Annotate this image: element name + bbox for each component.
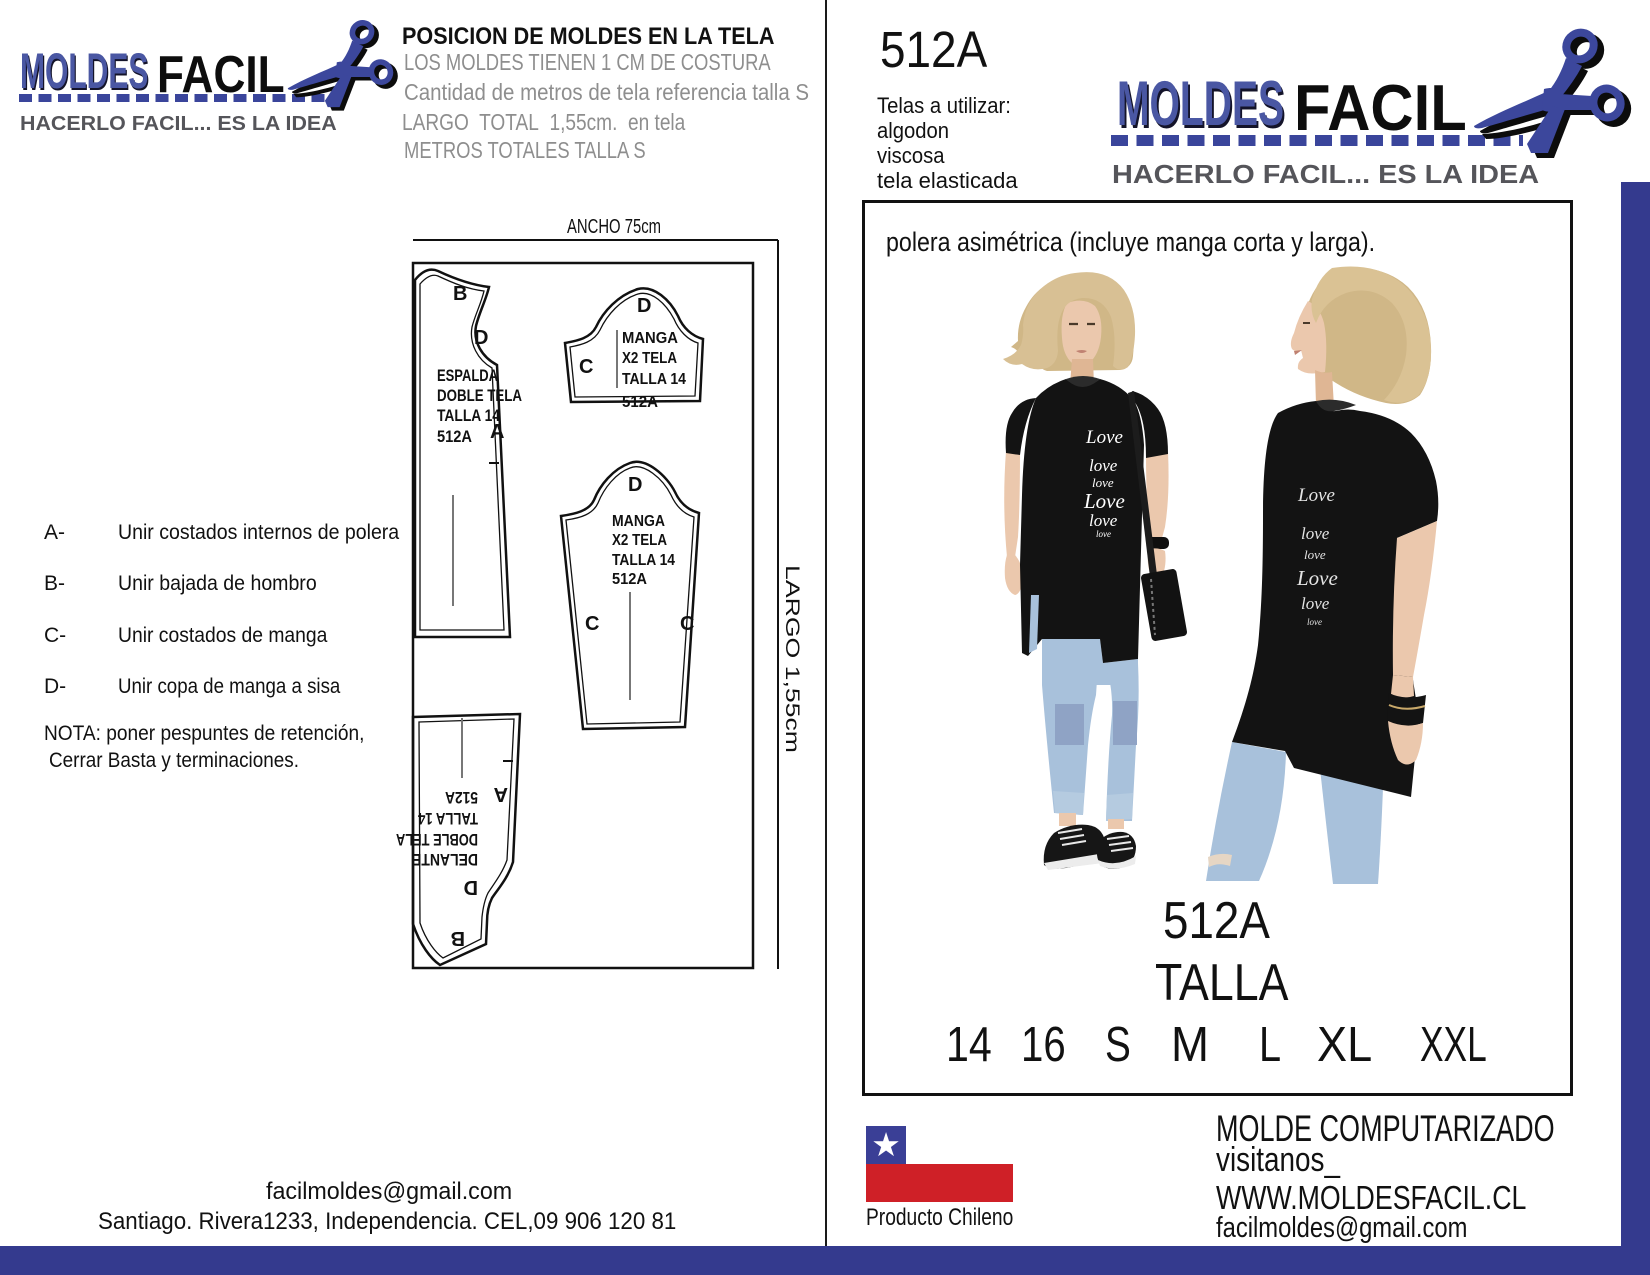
svg-text:DOBLE TELA: DOBLE TELA (437, 386, 522, 405)
svg-text:love: love (1307, 617, 1322, 627)
svg-text:512A: 512A (445, 788, 478, 807)
svg-text:TALLA 14: TALLA 14 (612, 552, 675, 569)
svg-text:C: C (680, 613, 694, 635)
svg-text:love: love (1089, 511, 1118, 530)
svg-text:TALLA 14: TALLA 14 (622, 371, 686, 388)
svg-text:C: C (579, 356, 593, 378)
svg-text:love: love (1089, 456, 1118, 475)
svg-text:512A: 512A (612, 571, 647, 588)
svg-text:D: D (464, 876, 478, 898)
svg-text:MANGA: MANGA (622, 330, 678, 347)
svg-text:MANGA: MANGA (612, 513, 665, 530)
svg-text:LARGO 1,55cm: LARGO 1,55cm (781, 565, 802, 753)
svg-text:B: B (451, 927, 465, 949)
svg-text:ANCHO 75cm: ANCHO 75cm (567, 215, 661, 238)
svg-text:love: love (1096, 529, 1111, 539)
svg-text:D: D (628, 474, 642, 496)
svg-text:512A: 512A (437, 427, 472, 446)
svg-text:512A: 512A (622, 394, 658, 411)
svg-text:DOBLE TELA: DOBLE TELA (396, 830, 478, 849)
svg-text:D: D (637, 295, 651, 317)
svg-text:Love: Love (1083, 489, 1125, 513)
svg-text:love: love (1301, 524, 1330, 543)
svg-text:TALLA 14: TALLA 14 (437, 406, 500, 425)
svg-text:love: love (1092, 475, 1114, 490)
svg-text:A: A (494, 783, 508, 805)
svg-text:love: love (1304, 547, 1326, 562)
svg-text:B: B (453, 283, 467, 305)
svg-text:D: D (474, 327, 488, 349)
svg-text:Love: Love (1085, 427, 1123, 448)
svg-text:X2 TELA: X2 TELA (622, 350, 677, 367)
svg-text:ESPALDA: ESPALDA (437, 366, 498, 385)
svg-text:DELANTE: DELANTE (412, 850, 478, 869)
svg-text:love: love (1301, 594, 1330, 613)
svg-text:C: C (585, 613, 599, 635)
svg-text:X2 TELA: X2 TELA (612, 532, 667, 549)
svg-text:TALLA 14: TALLA 14 (418, 809, 478, 828)
svg-text:Love: Love (1296, 566, 1338, 590)
svg-text:Love: Love (1297, 485, 1335, 506)
